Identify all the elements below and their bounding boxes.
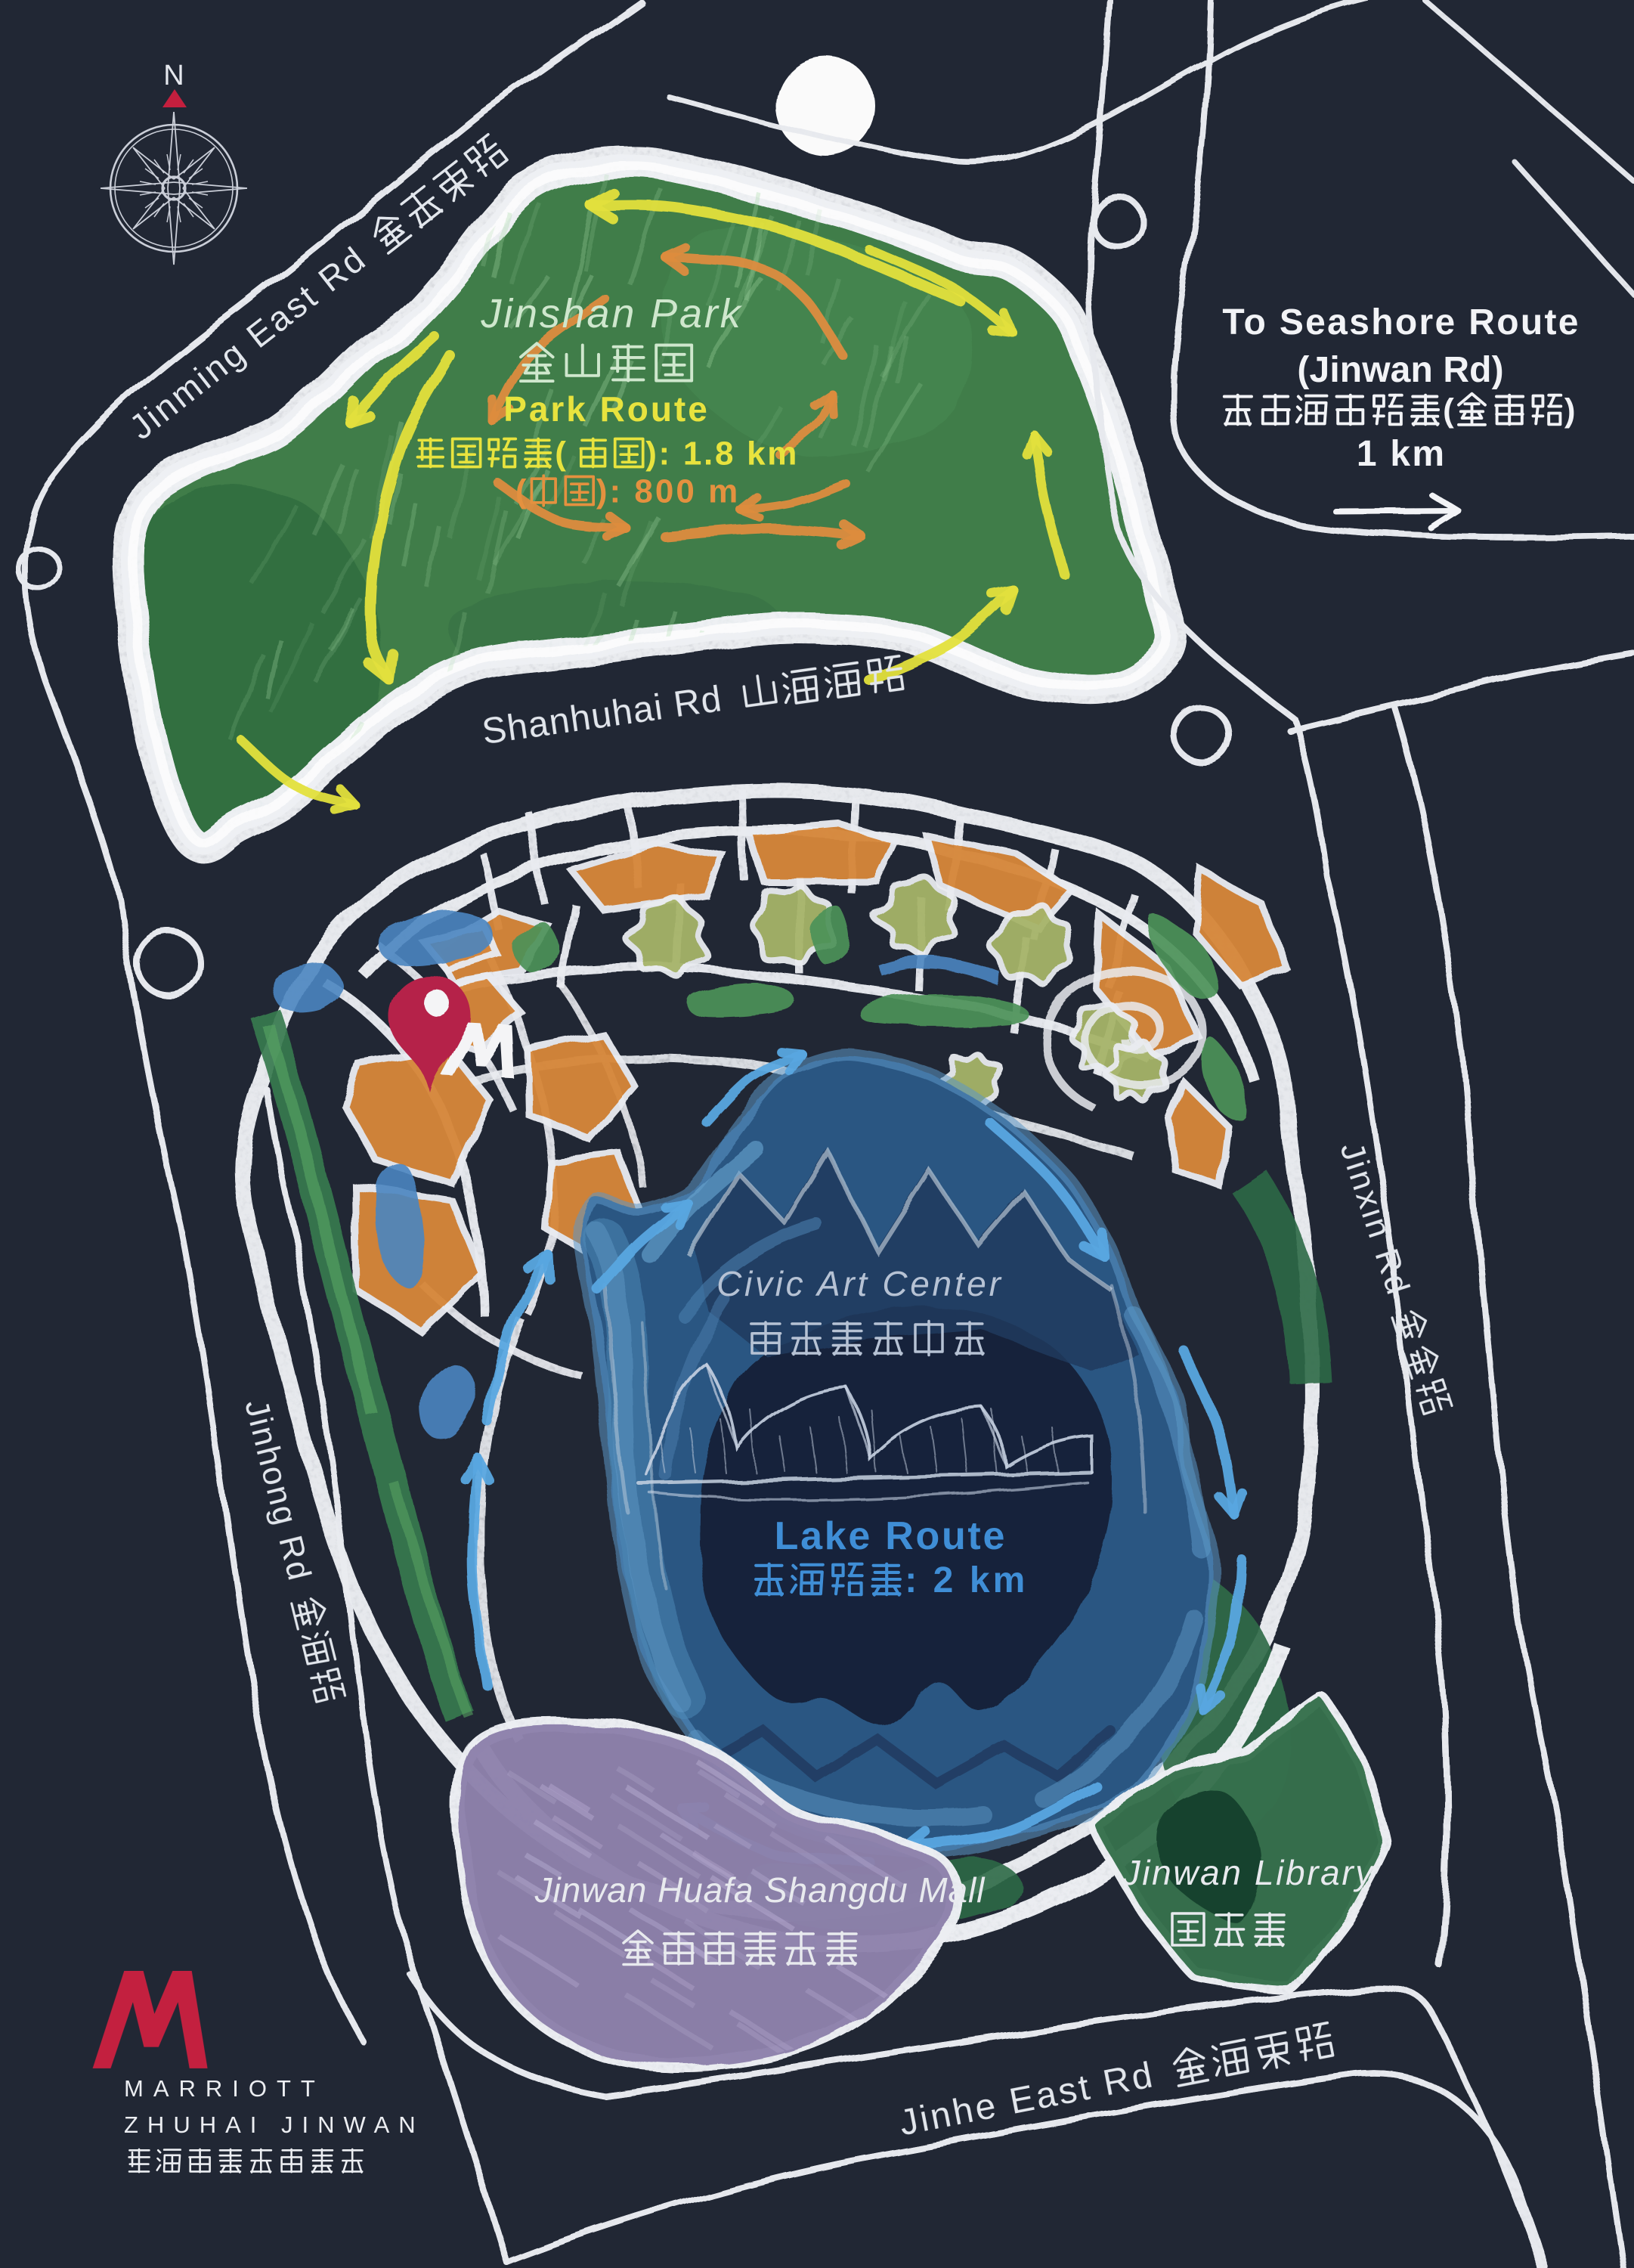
- svg-text:): ): [1564, 392, 1576, 429]
- svg-text:Lake Route: Lake Route: [775, 1514, 1005, 1558]
- svg-text:(: (: [515, 472, 527, 510]
- svg-text:MARRIOTT: MARRIOTT: [124, 2075, 325, 2102]
- svg-text:(Jinwan Rd): (Jinwan Rd): [1297, 350, 1503, 390]
- svg-text:Park Route: Park Route: [503, 389, 707, 429]
- svg-text:To Seashore Route: To Seashore Route: [1222, 302, 1578, 342]
- svg-text:): 800 m: ): 800 m: [596, 472, 738, 510]
- svg-text:(: (: [555, 435, 566, 472]
- svg-text:): 1.8 km: ): 1.8 km: [645, 435, 797, 472]
- svg-text:N: N: [163, 60, 184, 91]
- svg-text:Jinwan Huafa Shangdu Mall: Jinwan Huafa Shangdu Mall: [534, 1870, 986, 1910]
- svg-text:1 km: 1 km: [1357, 434, 1444, 474]
- svg-text:Civic Art Center: Civic Art Center: [716, 1264, 1001, 1303]
- svg-text:(: (: [1443, 392, 1454, 429]
- svg-text:Jinwan Library: Jinwan Library: [1122, 1853, 1376, 1892]
- svg-text:: 2 km: : 2 km: [905, 1560, 1025, 1600]
- svg-text:ZHUHAI JINWAN: ZHUHAI JINWAN: [124, 2112, 425, 2138]
